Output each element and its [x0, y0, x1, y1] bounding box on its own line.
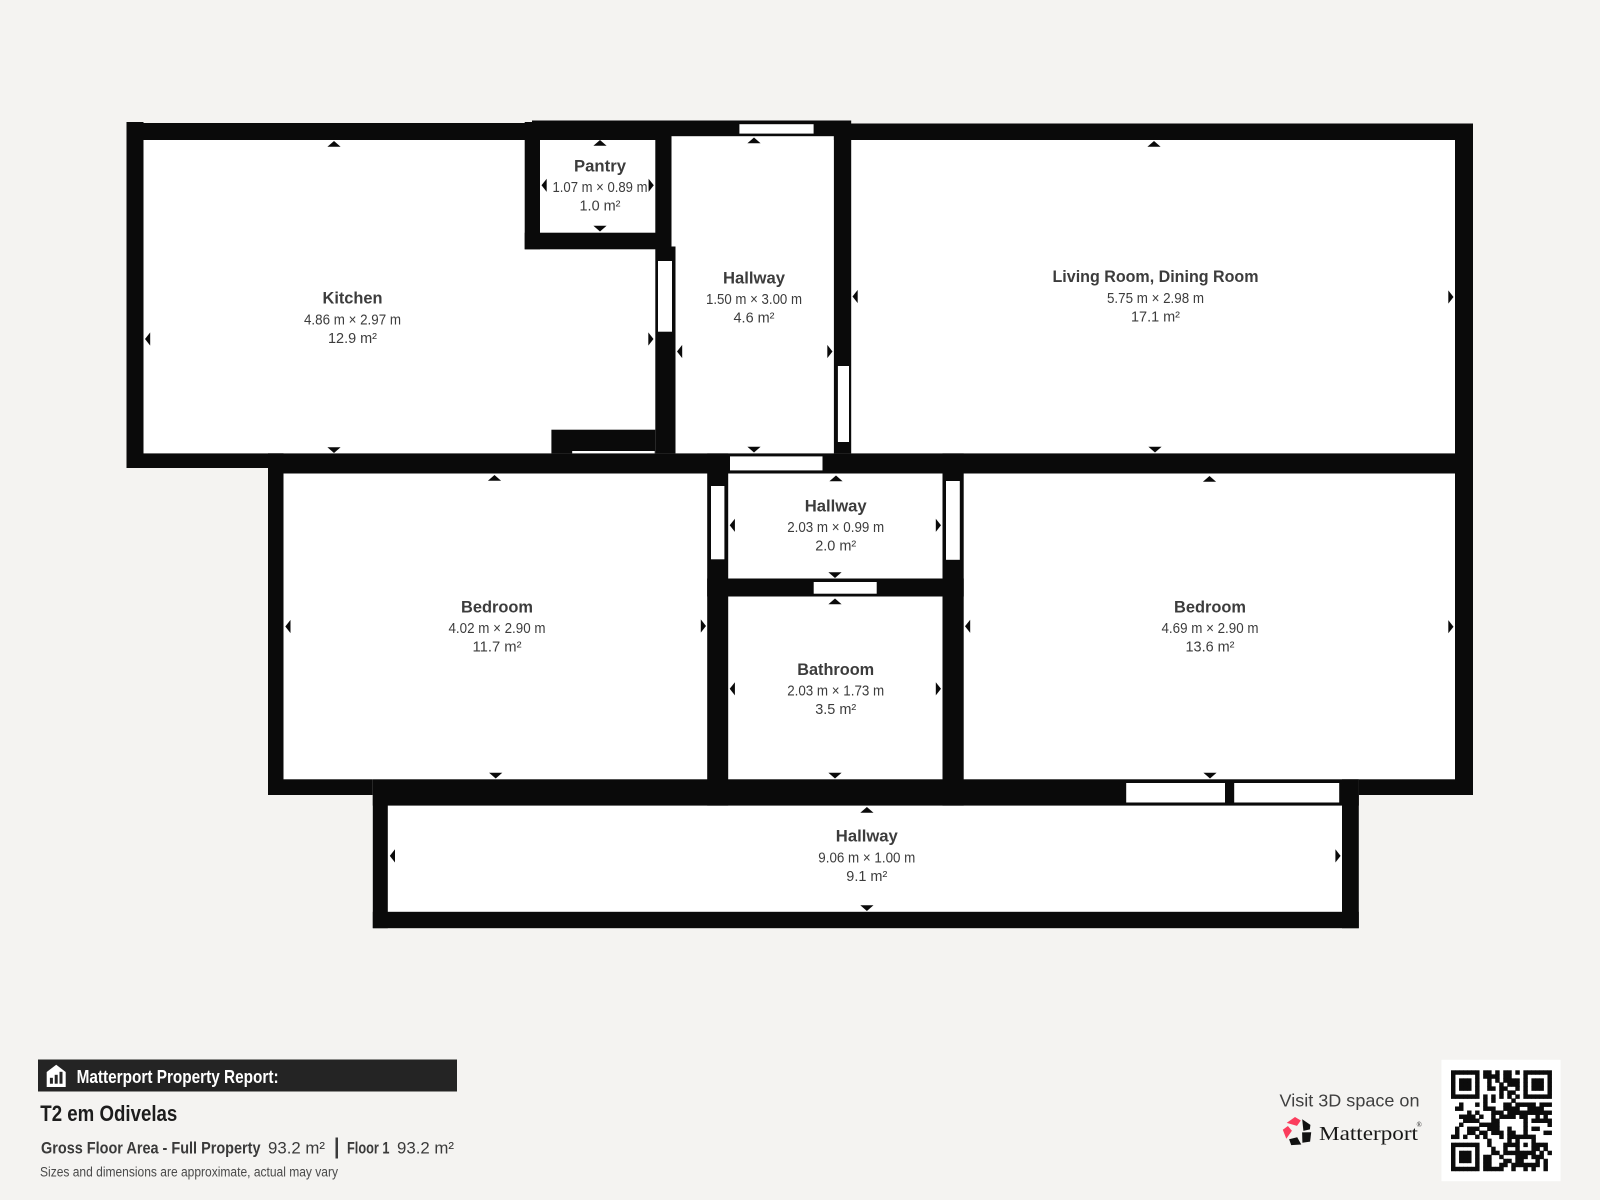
- svg-text:Floor 1: Floor 1: [347, 1139, 390, 1158]
- svg-text:93.2 m²: 93.2 m²: [397, 1139, 454, 1158]
- svg-text:17.1 m²: 17.1 m²: [1131, 309, 1180, 325]
- svg-text:T2 em Odivelas: T2 em Odivelas: [40, 1101, 177, 1126]
- svg-text:11.7 m²: 11.7 m²: [473, 640, 522, 656]
- svg-text:3.5 m²: 3.5 m²: [815, 702, 856, 718]
- svg-text:2.03 m × 0.99 m: 2.03 m × 0.99 m: [787, 520, 884, 536]
- svg-text:12.9 m²: 12.9 m²: [328, 331, 377, 347]
- svg-text:Living Room, Dining Room: Living Room, Dining Room: [1053, 267, 1259, 286]
- svg-text:Matterport Property Report:: Matterport Property Report:: [77, 1067, 279, 1087]
- svg-text:Pantry: Pantry: [574, 157, 627, 176]
- svg-text:Kitchen: Kitchen: [323, 289, 383, 308]
- svg-text:1.50 m × 3.00 m: 1.50 m × 3.00 m: [706, 292, 802, 308]
- svg-text:Bathroom: Bathroom: [797, 660, 874, 679]
- svg-text:Hallway: Hallway: [805, 497, 868, 516]
- svg-text:4.69 m × 2.90 m: 4.69 m × 2.90 m: [1162, 621, 1259, 637]
- svg-text:9.1 m²: 9.1 m²: [846, 869, 887, 885]
- svg-text:13.6 m²: 13.6 m²: [1186, 640, 1235, 656]
- svg-text:9.06 m × 1.00 m: 9.06 m × 1.00 m: [818, 850, 915, 866]
- svg-text:Sizes and dimensions are appro: Sizes and dimensions are approximate, ac…: [40, 1165, 338, 1180]
- svg-text:4.6 m²: 4.6 m²: [734, 311, 775, 327]
- svg-text:Hallway: Hallway: [836, 827, 899, 846]
- svg-text:2.03 m × 1.73 m: 2.03 m × 1.73 m: [787, 684, 884, 700]
- svg-text:4.02 m × 2.90 m: 4.02 m × 2.90 m: [449, 621, 546, 637]
- svg-text:4.86 m × 2.97 m: 4.86 m × 2.97 m: [304, 312, 401, 328]
- svg-text:Matterport: Matterport: [1319, 1123, 1418, 1145]
- svg-text:5.75 m × 2.98 m: 5.75 m × 2.98 m: [1107, 291, 1204, 307]
- svg-text:Hallway: Hallway: [723, 269, 786, 288]
- svg-text:Bedroom: Bedroom: [1174, 598, 1246, 617]
- svg-text:Visit 3D space on: Visit 3D space on: [1280, 1090, 1420, 1110]
- svg-text:93.2 m²: 93.2 m²: [268, 1139, 325, 1158]
- svg-text:1.0 m²: 1.0 m²: [580, 199, 621, 215]
- svg-text:®: ®: [1417, 1121, 1423, 1129]
- svg-text:Gross Floor Area - Full Proper: Gross Floor Area - Full Property: [41, 1139, 261, 1158]
- svg-text:2.0 m²: 2.0 m²: [815, 539, 856, 555]
- svg-text:Bedroom: Bedroom: [461, 598, 533, 617]
- svg-text:1.07 m × 0.89 m: 1.07 m × 0.89 m: [553, 180, 648, 196]
